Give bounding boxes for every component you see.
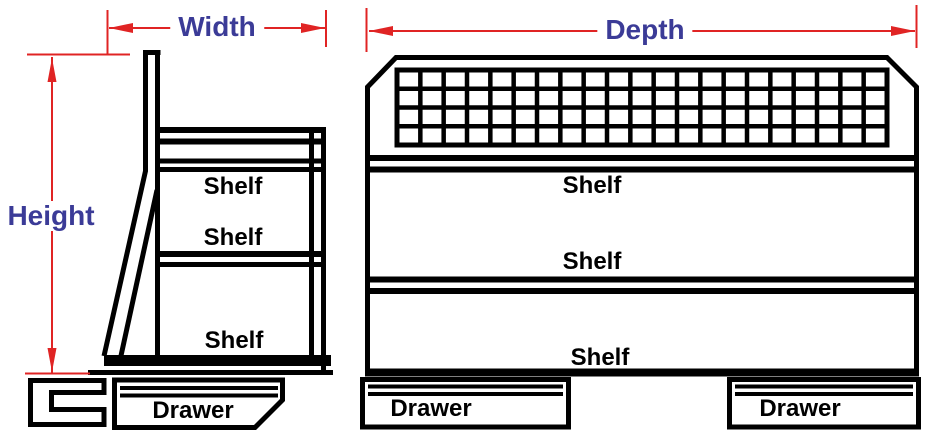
side-shelf-label-3: Shelf bbox=[205, 329, 264, 353]
side-view bbox=[31, 50, 334, 428]
front-view bbox=[363, 58, 920, 428]
shelving-unit-technical-drawing: Width Height Depth Shelf Shelf Shelf Dra… bbox=[0, 0, 935, 444]
height-dimension-label: Height bbox=[0, 201, 103, 231]
front-shelf-label-3: Shelf bbox=[571, 346, 630, 370]
side-floor-bracket bbox=[31, 381, 105, 425]
depth-arrow-right bbox=[891, 26, 915, 36]
width-arrow-left bbox=[109, 23, 133, 33]
drawing-linework bbox=[0, 0, 935, 444]
front-shelf-label-1: Shelf bbox=[563, 174, 622, 198]
depth-arrow-left bbox=[369, 26, 393, 36]
front-drawer-left-label: Drawer bbox=[390, 397, 471, 421]
height-arrow-top bbox=[48, 58, 57, 82]
side-post-inner-brace bbox=[121, 190, 158, 358]
front-shelf-label-2: Shelf bbox=[563, 250, 622, 274]
height-arrow-bottom bbox=[48, 348, 57, 372]
width-arrow-right bbox=[301, 23, 325, 33]
width-dimension-label: Width bbox=[170, 12, 264, 42]
side-drawer-label: Drawer bbox=[152, 399, 233, 423]
side-post-outer-edge bbox=[104, 50, 146, 356]
front-drawer-right-label: Drawer bbox=[759, 397, 840, 421]
side-shelf-label-2: Shelf bbox=[204, 226, 263, 250]
side-shelf-label-1: Shelf bbox=[204, 175, 263, 199]
depth-dimension-label: Depth bbox=[597, 15, 692, 45]
